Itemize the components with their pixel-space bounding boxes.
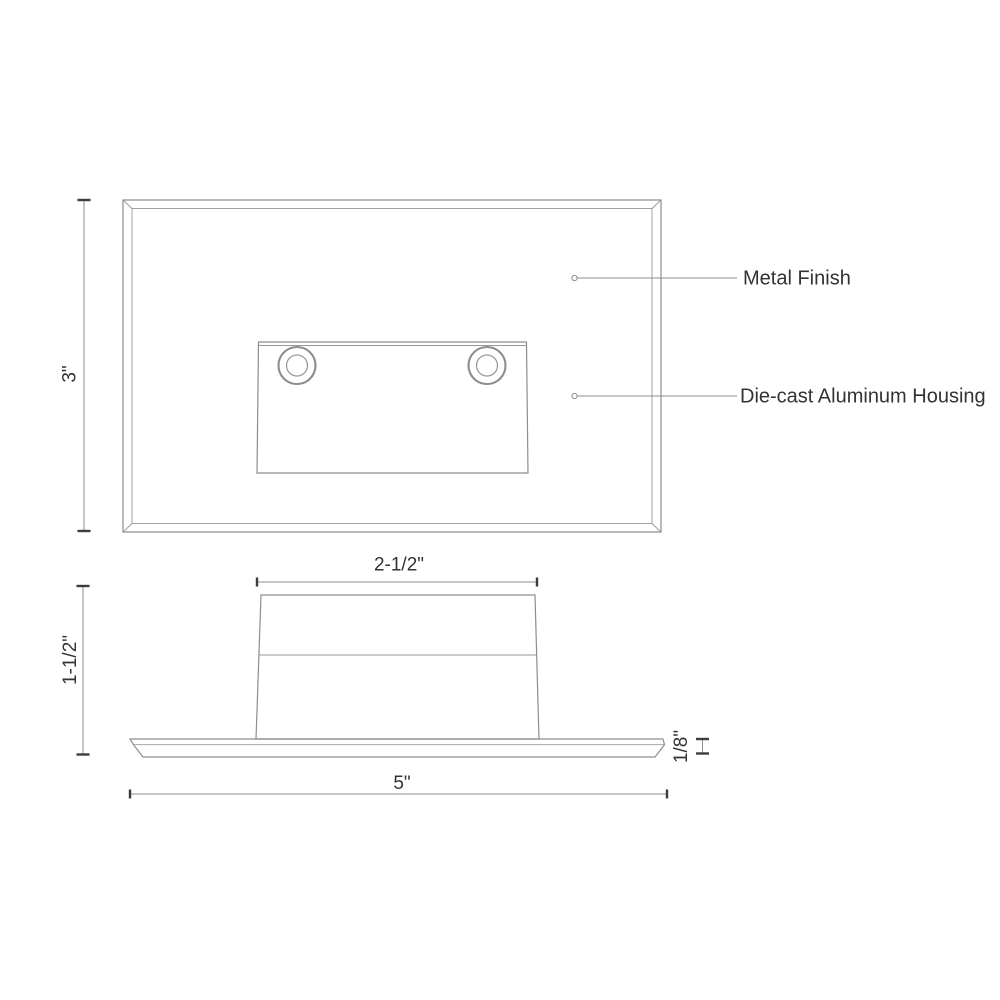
dimension-label-front-height: 3": [60, 365, 81, 382]
miter-line-bottom-right: [652, 524, 661, 533]
miter-line-top-left: [123, 200, 132, 209]
callout-dot-icon: [572, 393, 577, 398]
dimension-housing-width: 2-1/2": [257, 555, 537, 587]
housing-opening-outline: [257, 342, 528, 473]
screw-left-outer-ring-icon: [279, 347, 316, 384]
front-view-outer-frame: [123, 200, 661, 532]
technical-drawing: 3" Metal Finish Die-cast Aluminum Housin…: [0, 0, 1000, 1000]
side-view: [130, 595, 665, 757]
drawing-svg: 3" Metal Finish Die-cast Aluminum Housin…: [0, 0, 1000, 1000]
callout-metal-finish: Metal Finish: [572, 268, 851, 290]
miter-line-bottom-left: [123, 524, 132, 533]
screw-right-outer-ring-icon: [469, 347, 506, 384]
callout-label-metal-finish: Metal Finish: [743, 268, 851, 290]
callout-dot-icon: [572, 275, 577, 280]
dimension-label-plate-thickness: 1/8": [671, 730, 692, 763]
side-view-housing-outline: [256, 595, 539, 739]
side-view-faceplate-outline: [130, 739, 665, 757]
miter-line-top-right: [652, 200, 661, 209]
front-view: [123, 200, 661, 532]
dimension-side-height: 1-1/2": [60, 586, 90, 755]
dimension-label-housing-width: 2-1/2": [374, 555, 424, 576]
screw-left-inner-ring-icon: [287, 355, 308, 376]
dimension-label-overall-width: 5": [393, 773, 410, 794]
dimension-front-height: 3": [60, 200, 91, 531]
front-view-inner-frame: [132, 209, 652, 524]
screw-right-inner-ring-icon: [477, 355, 498, 376]
dimension-overall-width: 5": [130, 773, 667, 799]
dimension-plate-thickness: 1/8": [671, 730, 709, 763]
callout-die-cast-housing: Die-cast Aluminum Housing: [572, 386, 986, 408]
callout-label-die-cast-housing: Die-cast Aluminum Housing: [740, 386, 986, 408]
dimension-label-side-height: 1-1/2": [60, 635, 81, 685]
